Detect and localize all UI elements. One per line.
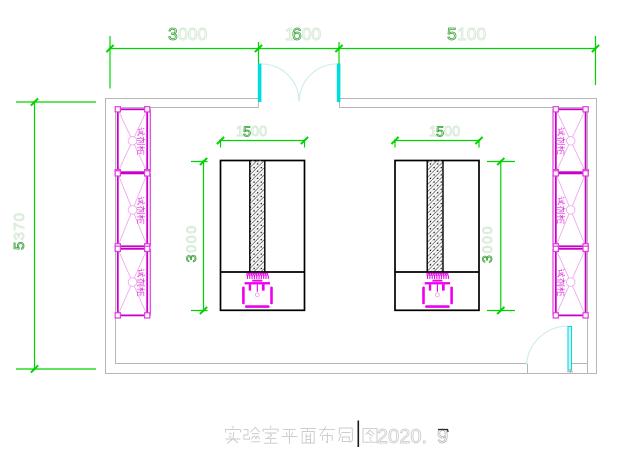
svg-text:000: 000 xyxy=(178,24,207,44)
svg-text:6: 6 xyxy=(292,24,302,44)
svg-text:3: 3 xyxy=(183,253,199,263)
svg-text:5: 5 xyxy=(447,24,457,44)
svg-text:00: 00 xyxy=(251,124,267,140)
svg-text:2020.: 2020. xyxy=(377,426,427,448)
svg-text:00: 00 xyxy=(302,24,322,44)
svg-text:100: 100 xyxy=(457,24,486,44)
svg-text:5: 5 xyxy=(436,125,444,141)
svg-text:370: 370 xyxy=(11,212,28,241)
svg-text:5: 5 xyxy=(11,240,28,250)
svg-text:000: 000 xyxy=(183,224,199,253)
svg-text:000: 000 xyxy=(479,225,495,254)
svg-text:3: 3 xyxy=(479,253,495,263)
svg-text:5: 5 xyxy=(243,125,251,141)
svg-text:00: 00 xyxy=(444,124,460,140)
svg-text:3: 3 xyxy=(168,24,178,44)
